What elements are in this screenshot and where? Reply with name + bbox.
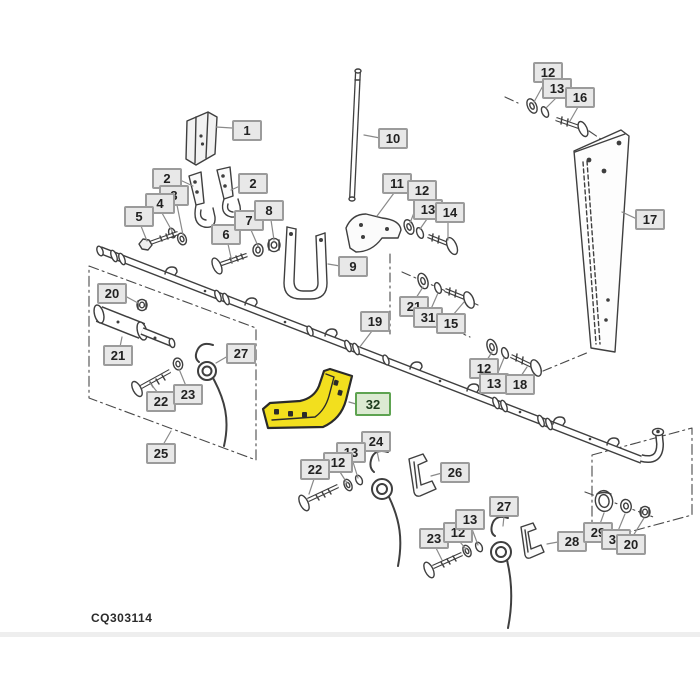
- callout-20-b[interactable]: 20: [616, 534, 646, 555]
- callout-17[interactable]: 17: [635, 209, 665, 230]
- callout-10[interactable]: 10: [378, 128, 408, 149]
- part-20-nut-right: [640, 506, 650, 517]
- callout-13-e[interactable]: 13: [455, 509, 485, 530]
- callout-25[interactable]: 25: [146, 443, 176, 464]
- callout-19[interactable]: 19: [360, 311, 390, 332]
- callout-27-a[interactable]: 27: [226, 343, 256, 364]
- parts-diagram: 1 2 2 3 4 5 6 7 8 12 13 16 10 11 12 13 1…: [0, 0, 700, 700]
- part-19-toolbar: [96, 245, 664, 460]
- callout-1[interactable]: 1: [232, 120, 262, 141]
- part-21-bushing: [92, 304, 175, 348]
- part-23-bolt-bottom: [422, 554, 462, 579]
- callout-16[interactable]: 16: [565, 87, 595, 108]
- callout-18[interactable]: 18: [505, 374, 535, 395]
- part-27-tine-right: [491, 517, 511, 628]
- part-17-support: [574, 130, 629, 352]
- part-2-bracket-left: [189, 172, 215, 227]
- hardware-12-13-14: [402, 218, 460, 256]
- callout-23-a[interactable]: 23: [173, 384, 203, 405]
- callout-26[interactable]: 26: [440, 462, 470, 483]
- callout-21-b[interactable]: 21: [103, 345, 133, 366]
- callout-8[interactable]: 8: [254, 200, 284, 221]
- part-22-bolt-center: [297, 486, 338, 512]
- callout-5[interactable]: 5: [124, 206, 154, 227]
- callout-22-b[interactable]: 22: [300, 459, 330, 480]
- part-23-washer-left: [172, 357, 184, 371]
- part-32-bracket-highlighted: [263, 369, 352, 428]
- part-24-tine: [370, 451, 400, 566]
- part-1-bracket: [186, 112, 217, 165]
- hardware-12-13-bottom: [461, 541, 484, 558]
- callout-14[interactable]: 14: [435, 202, 465, 223]
- callout-12-b[interactable]: 12: [407, 180, 437, 201]
- callout-9[interactable]: 9: [338, 256, 368, 277]
- part-10-rod: [349, 69, 361, 201]
- part-26-clip: [409, 454, 436, 496]
- part-11-bracket: [346, 214, 401, 252]
- callout-27-b[interactable]: 27: [489, 496, 519, 517]
- diagram-code: CQ303114: [91, 611, 152, 625]
- part-20-nut-left: [137, 299, 147, 310]
- part-30-washer: [620, 499, 633, 514]
- callout-22-a[interactable]: 22: [146, 391, 176, 412]
- footer-divider: [0, 632, 700, 637]
- callout-2-b[interactable]: 2: [238, 173, 268, 194]
- part-9-clamp: [284, 227, 327, 299]
- part-28-clip: [521, 523, 544, 558]
- hardware-12-13-center: [342, 474, 364, 492]
- part-6-bolt: [210, 254, 247, 275]
- part-29-bushing: [594, 489, 615, 512]
- callout-20-a[interactable]: 20: [97, 283, 127, 304]
- callout-32-highlighted[interactable]: 32: [355, 392, 391, 416]
- callout-15[interactable]: 15: [436, 313, 466, 334]
